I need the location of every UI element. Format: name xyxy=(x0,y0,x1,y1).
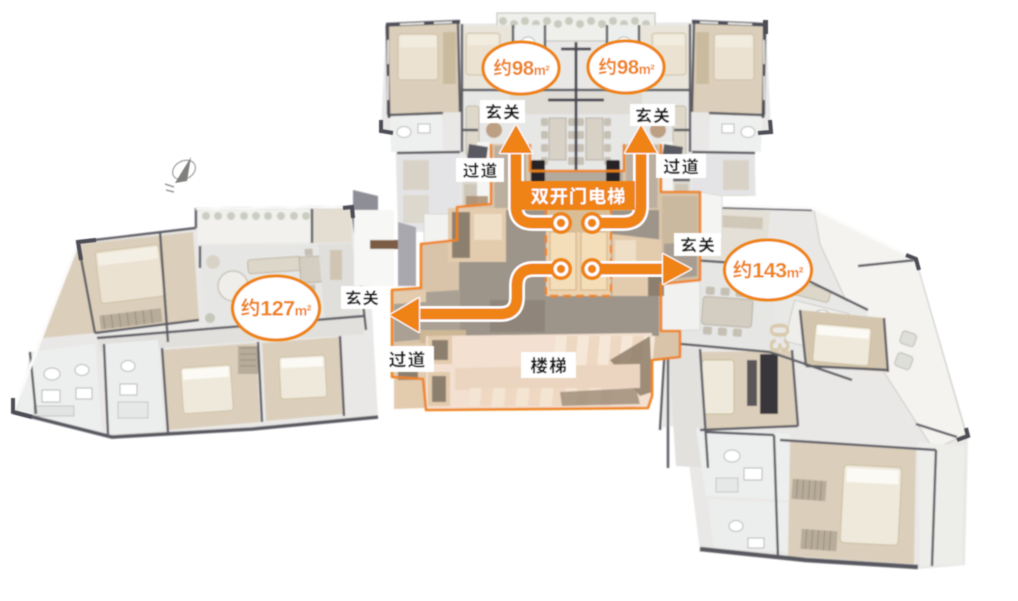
svg-text:03: 03 xyxy=(764,322,795,353)
